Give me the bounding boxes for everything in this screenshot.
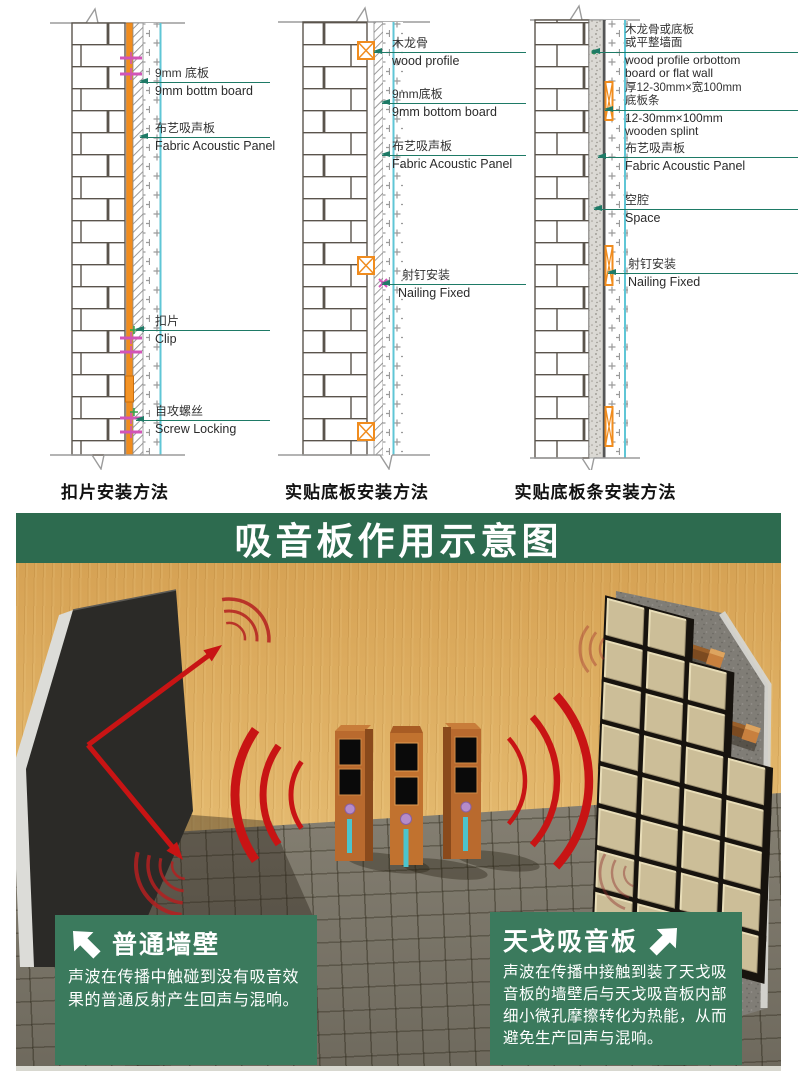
plain-wall-info-box: 普通墙壁 声波在传播中触碰到没有吸音效果的普通反射产生回声与混响。	[55, 915, 317, 1065]
arrow-up-right-icon	[641, 916, 689, 964]
poster-title-bar: 吸音板作用示意图	[16, 513, 781, 563]
acoustic-demo-poster: 吸音板作用示意图	[16, 513, 781, 1066]
label-leader-line	[605, 110, 798, 111]
label-leader-line	[592, 52, 798, 53]
arrow-up-left-icon	[61, 919, 109, 967]
label-nailing: 射钉安装 Nailing Fixed	[382, 268, 526, 300]
diagram-caption: 实贴底板条安装方法	[508, 478, 683, 503]
plain-wall-box-title: 普通墙壁	[112, 925, 220, 961]
speaker-towers	[335, 723, 481, 867]
orange-batten-marker	[126, 376, 134, 402]
speaker-center	[390, 726, 423, 867]
label-leader-line	[382, 284, 526, 285]
label-leader-line	[136, 420, 270, 421]
label-wood-profile: 木龙骨 wood profile	[374, 36, 526, 68]
speaker-right	[443, 723, 481, 859]
label-wooden-splint: 厚12-30mm×宽100mm 底板条 12-30mm×100mm wooden…	[605, 82, 798, 137]
acoustic-panel-box-title: 天戈吸音板	[503, 922, 638, 958]
bottom-divider-strip	[16, 1066, 781, 1071]
speaker-left	[335, 725, 373, 861]
label-fabric-panel: 布艺吸声板 Fabric Acoustic Panel	[382, 139, 526, 171]
plain-wall-box-header: 普通墙壁	[68, 925, 304, 961]
diagram-caption: 扣片安装方法	[30, 478, 200, 503]
label-clip: 扣片 Clip	[136, 314, 270, 346]
label-screw: 自攻螺丝 Screw Locking	[136, 404, 270, 436]
label-wood-profile-or-board: 木龙骨或底板 或平整墙面 wood profile orbottom board…	[592, 24, 798, 79]
diagram-clip-method: 9mm 底板 9mm bottm board 布艺吸声板 Fabric Acou…	[0, 0, 270, 505]
diagram-glued-batten-method: 木龙骨或底板 或平整墙面 wood profile orbottom board…	[530, 0, 800, 505]
label-leader-line	[136, 330, 270, 331]
acoustic-panel-box-body: 声波在传播中接触到装了天戈吸音板的墙壁后与天戈吸音板内部细小微孔摩擦转化为热能，…	[503, 962, 729, 1050]
label-bottom-board: 9mm底板 9mm bottom board	[382, 87, 526, 119]
wall-cross-section-drawing	[270, 0, 530, 470]
acoustic-panel-box-header: 天戈吸音板	[503, 922, 729, 958]
diagram-glued-board-method: 木龙骨 wood profile 9mm底板 9mm bottom board …	[270, 0, 530, 505]
diagram-caption: 实贴底板安装方法	[285, 478, 425, 503]
plain-wall-box-body: 声波在传播中触碰到没有吸音效果的普通反射产生回声与混响。	[68, 967, 304, 1012]
label-leader-line	[608, 273, 798, 274]
label-fabric-panel: 布艺吸声板 Fabric Acoustic Panel	[140, 121, 270, 153]
acoustic-panel-infographic: { "top_diagrams": { "left": { "caption":…	[0, 0, 800, 1085]
label-fabric-panel: 布艺吸声板 Fabric Acoustic Panel	[598, 141, 798, 173]
label-bottom-board: 9mm 底板 9mm bottm board	[140, 66, 270, 98]
room-3d-scene: 普通墙壁 声波在传播中触碰到没有吸音效果的普通反射产生回声与混响。 天戈吸音板 …	[16, 563, 781, 1066]
label-leader-line	[140, 137, 270, 138]
label-nailing: 射钉安装 Nailing Fixed	[608, 257, 798, 289]
label-leader-line	[598, 157, 798, 158]
poster-title: 吸音板作用示意图	[235, 511, 563, 565]
label-leader-line	[382, 155, 526, 156]
acoustic-panel-info-box: 天戈吸音板 声波在传播中接触到装了天戈吸音板的墙壁后与天戈吸音板内部细小微孔摩擦…	[490, 912, 742, 1065]
label-leader-line	[374, 52, 526, 53]
label-leader-line	[140, 82, 270, 83]
label-leader-line	[382, 103, 526, 104]
label-leader-line	[594, 209, 798, 210]
label-space: 空腔 Space	[594, 193, 798, 225]
installation-diagrams-section: 9mm 底板 9mm bottm board 布艺吸声板 Fabric Acou…	[0, 0, 800, 505]
